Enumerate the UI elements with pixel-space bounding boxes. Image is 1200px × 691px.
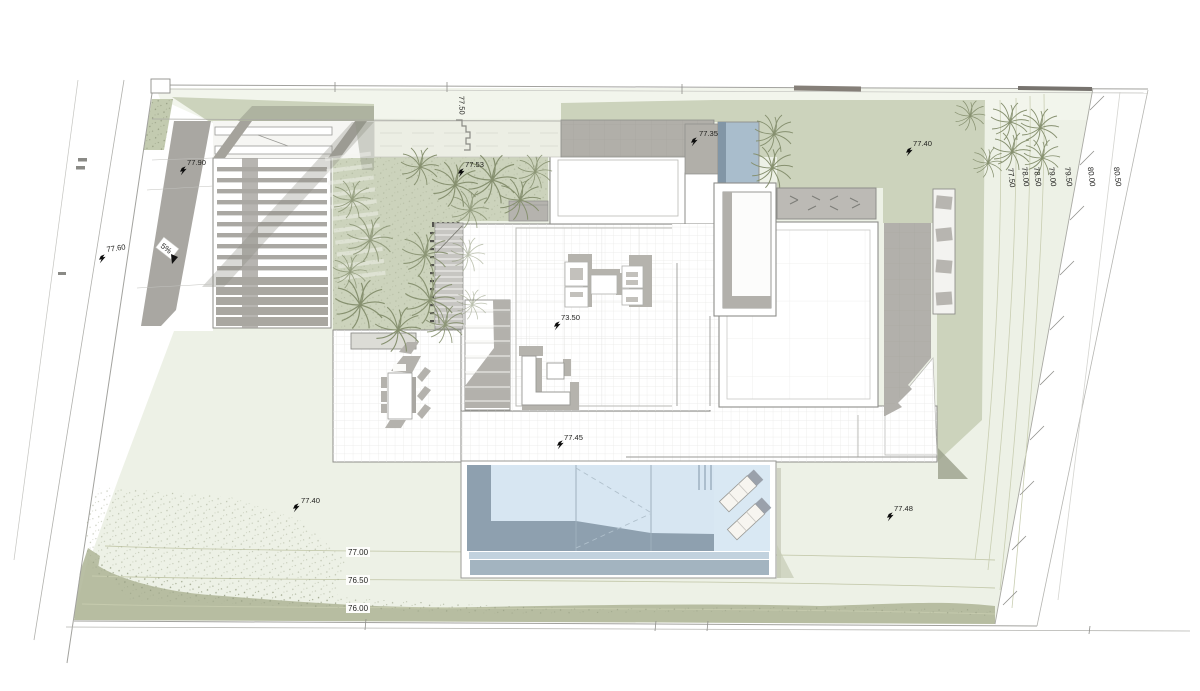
svg-text:77.48: 77.48 xyxy=(894,504,913,513)
svg-text:77.40: 77.40 xyxy=(913,139,932,148)
svg-text:77.35: 77.35 xyxy=(699,129,718,138)
svg-text:73.50: 73.50 xyxy=(561,313,580,322)
svg-text:77.90: 77.90 xyxy=(187,158,206,167)
svg-text:76.00: 76.00 xyxy=(348,604,369,613)
svg-text:76.50: 76.50 xyxy=(348,576,369,585)
svg-text:77.00: 77.00 xyxy=(348,548,369,557)
svg-text:77.40: 77.40 xyxy=(301,496,320,505)
svg-text:77.53: 77.53 xyxy=(465,160,484,169)
svg-text:77.50: 77.50 xyxy=(457,96,467,115)
svg-text:77.45: 77.45 xyxy=(564,433,583,442)
